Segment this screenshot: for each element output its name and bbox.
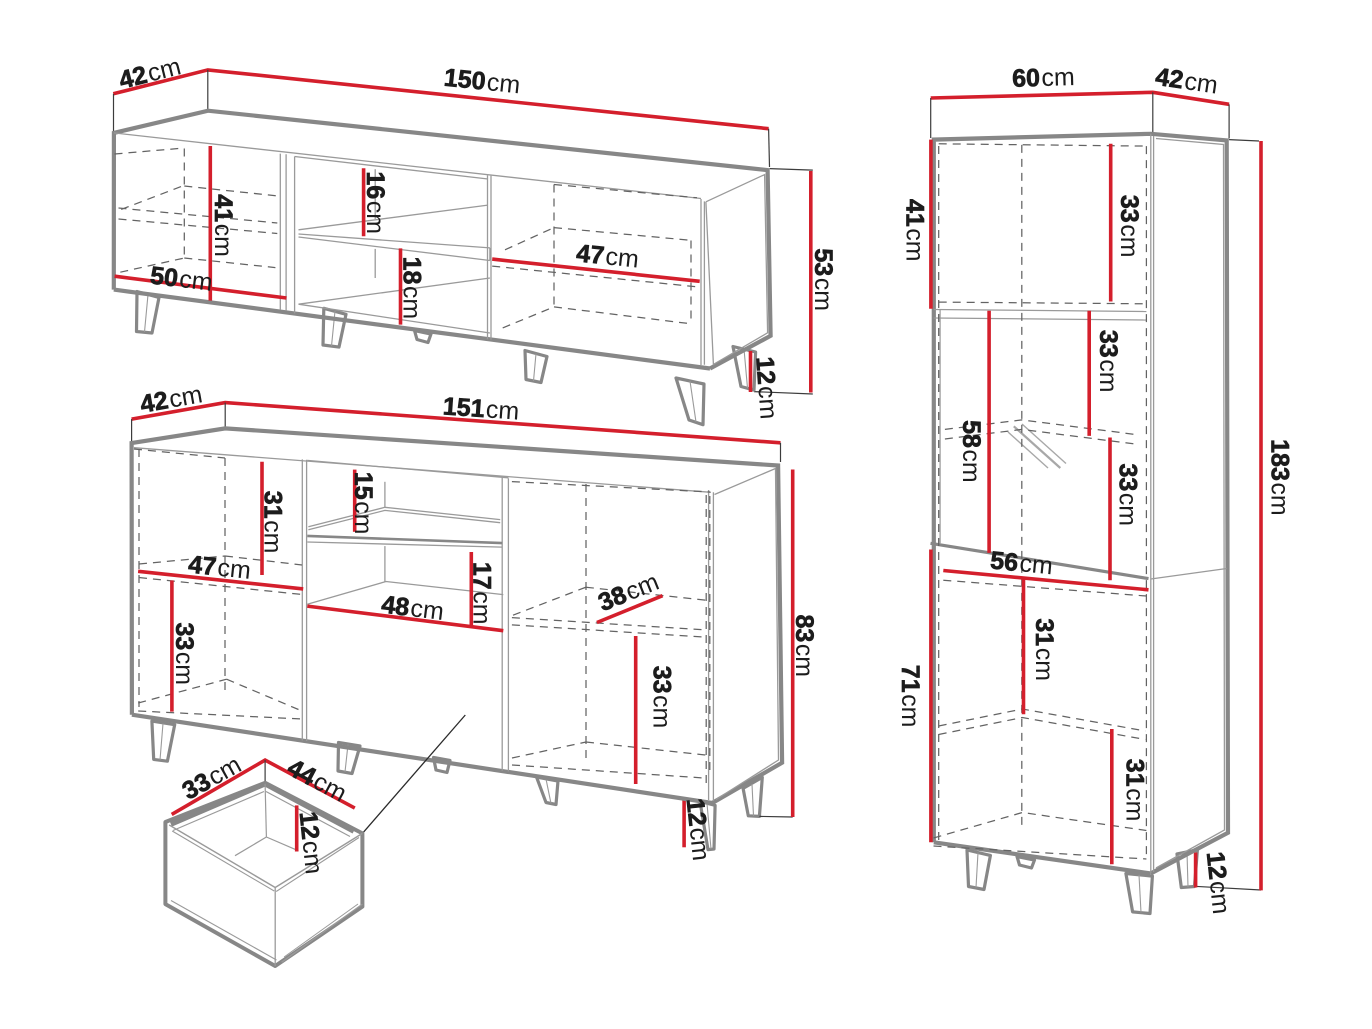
svg-text:15cm: 15cm bbox=[349, 472, 377, 535]
svg-text:31cm: 31cm bbox=[1031, 618, 1059, 681]
svg-text:53cm: 53cm bbox=[809, 248, 837, 311]
svg-text:33cm: 33cm bbox=[171, 622, 199, 685]
svg-text:41cm: 41cm bbox=[901, 199, 929, 262]
svg-text:16cm: 16cm bbox=[361, 171, 389, 234]
svg-text:18cm: 18cm bbox=[398, 257, 426, 320]
svg-text:12cm: 12cm bbox=[751, 356, 783, 420]
svg-text:71cm: 71cm bbox=[897, 665, 925, 728]
svg-text:33cm: 33cm bbox=[648, 666, 676, 729]
svg-text:183cm: 183cm bbox=[1266, 439, 1294, 516]
svg-text:31cm: 31cm bbox=[259, 491, 287, 554]
svg-text:41cm: 41cm bbox=[209, 194, 237, 257]
svg-text:83cm: 83cm bbox=[790, 614, 818, 677]
svg-text:33cm: 33cm bbox=[1114, 463, 1142, 526]
svg-text:31cm: 31cm bbox=[1121, 759, 1149, 822]
svg-text:33cm: 33cm bbox=[1094, 330, 1122, 393]
svg-text:60cm: 60cm bbox=[1012, 63, 1075, 93]
svg-text:17cm: 17cm bbox=[468, 562, 496, 625]
svg-text:58cm: 58cm bbox=[957, 420, 985, 483]
svg-text:56cm: 56cm bbox=[989, 546, 1054, 580]
svg-text:33cm: 33cm bbox=[1115, 195, 1143, 258]
svg-text:151cm: 151cm bbox=[442, 392, 520, 425]
